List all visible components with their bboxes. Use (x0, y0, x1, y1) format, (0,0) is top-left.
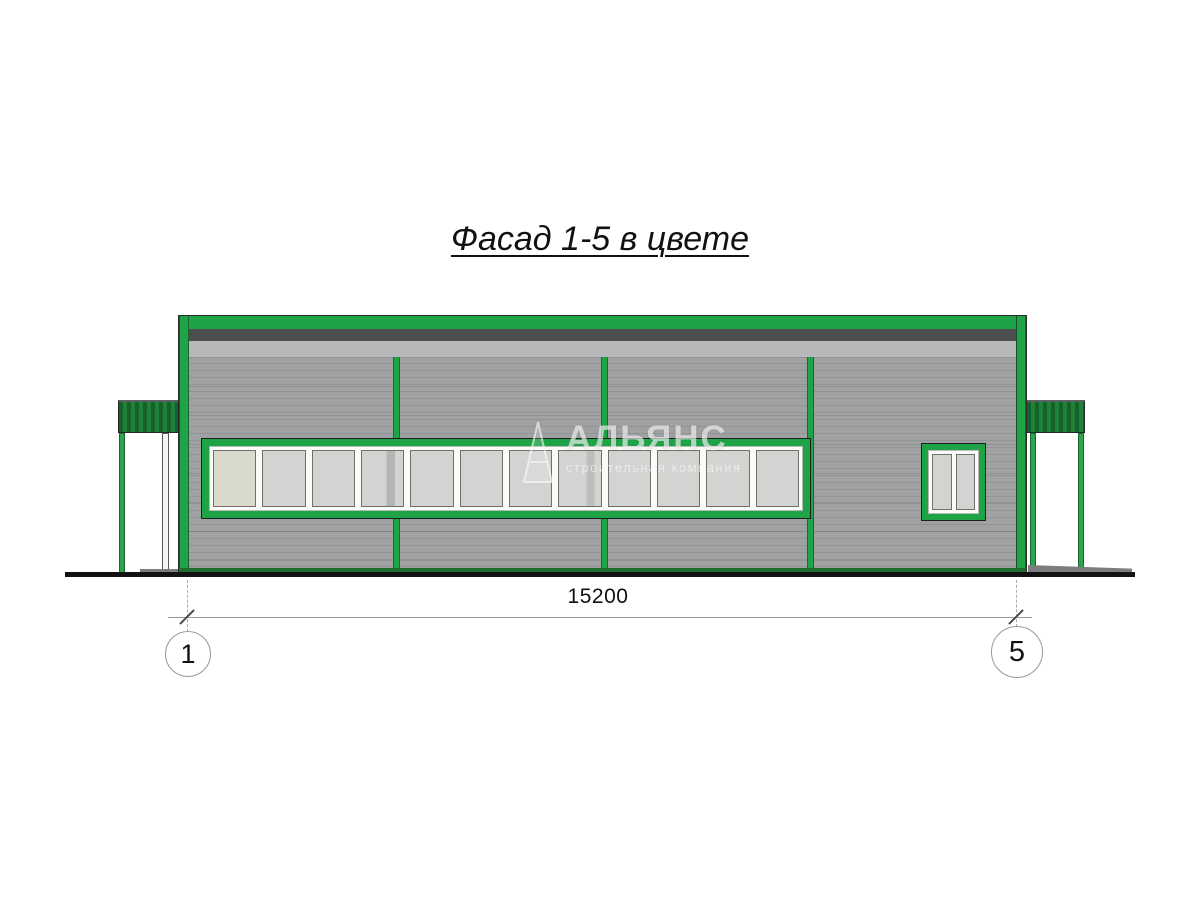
window-pane (756, 450, 799, 507)
dimension-line (168, 617, 1032, 618)
small-window (921, 443, 986, 521)
fascia-dark-band (188, 329, 1017, 341)
window-pane (657, 450, 700, 507)
window-pane (460, 450, 503, 507)
canopy-post-right-outer (1078, 433, 1084, 573)
window-pane (558, 450, 601, 507)
corner-column-left (179, 316, 189, 572)
canopy-post-left-outer (119, 433, 125, 573)
window-pane (213, 450, 256, 507)
window-pane (410, 450, 453, 507)
canopy-roof-right (1026, 400, 1085, 433)
canopy-post-right-inner (1030, 433, 1036, 573)
ribbon-window-glazing (209, 446, 803, 511)
window-pane (361, 450, 404, 507)
window-pane (956, 454, 976, 510)
window-pane (608, 450, 651, 507)
window-pane (706, 450, 749, 507)
extension-line-right (1016, 580, 1017, 632)
canopy-post-left-inner (162, 433, 169, 573)
facade-drawing-sheet: Фасад 1-5 в цвете 15200 1 5 (0, 0, 1200, 900)
small-window-glazing (928, 450, 979, 514)
window-pane (312, 450, 355, 507)
extension-line-left (187, 580, 188, 632)
page-title: Фасад 1-5 в цвете (0, 220, 1200, 259)
ground-line (65, 572, 1135, 577)
window-pane (509, 450, 552, 507)
parapet-green-strip (179, 316, 1026, 330)
window-pane (932, 454, 952, 510)
dimension-label: 15200 (538, 585, 658, 609)
fascia-light-band (188, 341, 1017, 358)
corner-column-right (1016, 316, 1026, 572)
building-elevation (178, 315, 1027, 573)
window-pane (262, 450, 305, 507)
canopy-roof-left (118, 400, 179, 433)
ribbon-window (201, 438, 811, 519)
axis-marker-5: 5 (991, 626, 1043, 678)
axis-marker-1: 1 (165, 631, 211, 677)
